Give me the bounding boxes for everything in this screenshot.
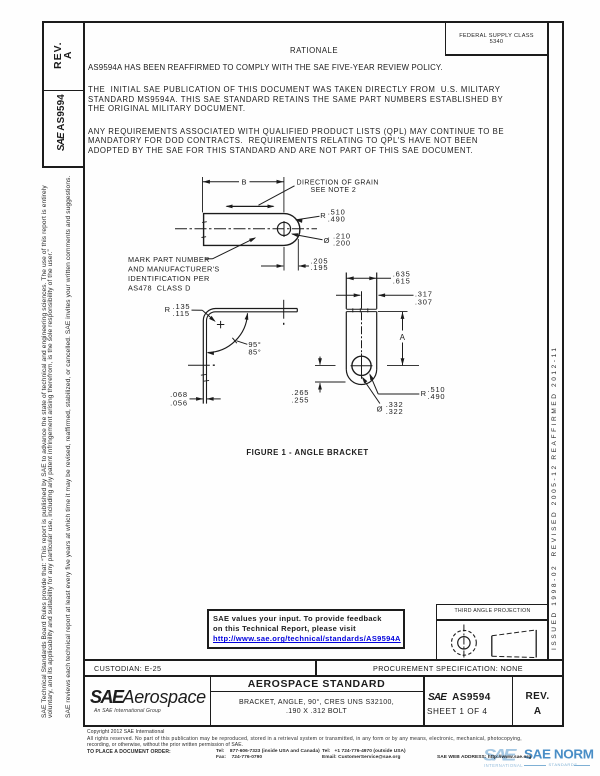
svg-text:MARK PART NUMBER: MARK PART NUMBER [128, 255, 210, 264]
svg-text:.615: .615 [393, 276, 411, 285]
svg-text:.195: .195 [311, 263, 329, 272]
svg-text:AND MANUFACTURER'S: AND MANUFACTURER'S [128, 265, 220, 274]
svg-text:.255: .255 [291, 396, 309, 405]
svg-text:.200: .200 [333, 239, 351, 248]
svg-text:.056: .056 [170, 398, 188, 407]
svg-text:R: R [320, 211, 326, 220]
svg-text:A: A [400, 333, 406, 342]
svg-text:AS478 CLASS D: AS478 CLASS D [128, 284, 191, 293]
svg-text:Ø: Ø [377, 405, 383, 414]
svg-text:.490: .490 [428, 392, 446, 401]
svg-text:IDENTIFICATION PER: IDENTIFICATION PER [128, 274, 210, 283]
svg-text:Ø: Ø [324, 236, 330, 245]
svg-text:SEE NOTE 2: SEE NOTE 2 [311, 187, 357, 194]
svg-text:.322: .322 [386, 407, 404, 416]
svg-text:B: B [241, 178, 246, 187]
svg-text:R: R [165, 305, 171, 314]
svg-text:DIRECTION OF GRAIN: DIRECTION OF GRAIN [297, 179, 379, 186]
svg-text:.307: .307 [415, 297, 433, 306]
svg-text:R: R [421, 389, 427, 398]
svg-text:85°: 85° [248, 348, 261, 357]
svg-text:.115: .115 [173, 309, 190, 318]
svg-text:.490: .490 [328, 214, 346, 223]
